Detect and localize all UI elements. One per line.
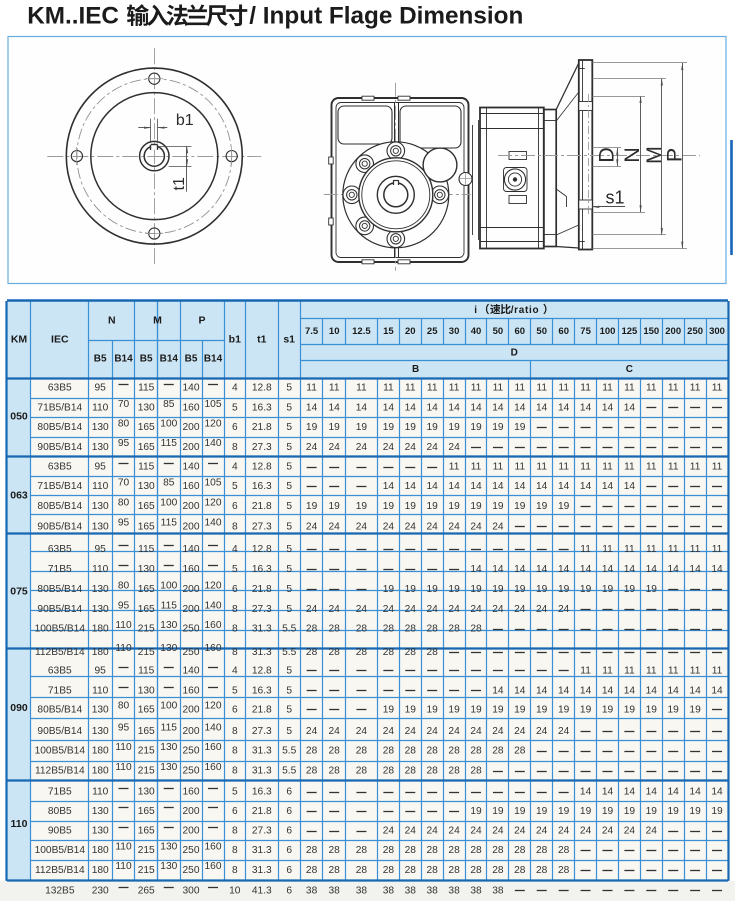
- svg-text:14: 14: [646, 787, 658, 798]
- svg-text:27.3: 27.3: [252, 826, 272, 837]
- svg-text:24: 24: [514, 826, 526, 837]
- svg-text:D: D: [511, 347, 518, 358]
- svg-text:115: 115: [161, 722, 178, 733]
- svg-text:11: 11: [580, 462, 591, 473]
- svg-text:11: 11: [712, 383, 723, 394]
- svg-text:71B5: 71B5: [48, 685, 72, 696]
- svg-text:19: 19: [383, 501, 395, 512]
- svg-text:95: 95: [95, 544, 107, 555]
- svg-text:11: 11: [690, 383, 701, 394]
- svg-text:300: 300: [709, 326, 725, 337]
- svg-text:19: 19: [470, 422, 482, 433]
- svg-text:i: i: [474, 305, 477, 316]
- svg-text:14: 14: [536, 402, 548, 413]
- svg-text:14: 14: [711, 787, 723, 798]
- svg-text:27.3: 27.3: [252, 604, 272, 615]
- svg-text:14: 14: [580, 787, 592, 798]
- svg-text:160: 160: [205, 762, 222, 773]
- svg-text:28: 28: [448, 766, 460, 777]
- svg-text:24: 24: [558, 726, 570, 737]
- svg-text:100: 100: [160, 701, 177, 712]
- svg-text:115: 115: [161, 518, 178, 529]
- svg-text:28: 28: [405, 766, 417, 777]
- svg-text:11: 11: [712, 544, 723, 555]
- svg-text:28: 28: [306, 845, 318, 856]
- svg-text:250: 250: [183, 624, 200, 635]
- svg-text:14: 14: [427, 481, 439, 492]
- svg-text:165: 165: [138, 806, 155, 817]
- svg-text:160: 160: [205, 620, 222, 631]
- svg-text:250: 250: [183, 746, 200, 757]
- svg-text:11: 11: [471, 462, 482, 473]
- svg-text:N: N: [108, 315, 116, 327]
- svg-text:11: 11: [536, 462, 547, 473]
- svg-text:19: 19: [624, 806, 636, 817]
- svg-text:120: 120: [205, 580, 222, 591]
- svg-text:10: 10: [329, 326, 340, 337]
- svg-text:215: 215: [138, 766, 155, 777]
- svg-text:28: 28: [427, 845, 439, 856]
- svg-text:24: 24: [405, 826, 417, 837]
- svg-text:63B5: 63B5: [48, 544, 72, 555]
- svg-text:14: 14: [514, 685, 526, 696]
- svg-text:19: 19: [558, 806, 570, 817]
- svg-text:14: 14: [492, 481, 504, 492]
- svg-text:5.5: 5.5: [282, 766, 296, 777]
- svg-text:160: 160: [205, 742, 222, 753]
- svg-text:24: 24: [329, 442, 341, 453]
- svg-text:19: 19: [329, 501, 341, 512]
- svg-text:s1: s1: [283, 334, 295, 346]
- svg-text:14: 14: [689, 685, 701, 696]
- svg-text:14: 14: [624, 402, 636, 413]
- svg-text:60: 60: [515, 326, 526, 337]
- svg-text:28: 28: [448, 865, 460, 876]
- svg-text:28: 28: [558, 845, 570, 856]
- svg-text:11: 11: [646, 462, 657, 473]
- svg-text:160: 160: [205, 643, 222, 654]
- svg-text:5: 5: [286, 544, 292, 555]
- svg-text:28: 28: [329, 865, 341, 876]
- svg-text:12.8: 12.8: [252, 666, 272, 677]
- svg-text:19: 19: [405, 704, 417, 715]
- svg-text:28: 28: [427, 865, 439, 876]
- svg-text:19: 19: [383, 584, 395, 595]
- svg-text:100B5/B14: 100B5/B14: [35, 746, 86, 757]
- svg-text:28: 28: [448, 845, 460, 856]
- svg-text:14: 14: [602, 685, 614, 696]
- svg-text:90B5/B14: 90B5/B14: [37, 442, 82, 453]
- svg-text:130: 130: [138, 787, 155, 798]
- svg-text:11: 11: [580, 666, 591, 677]
- svg-text:160: 160: [205, 842, 222, 853]
- svg-text:24: 24: [492, 826, 504, 837]
- svg-text:11: 11: [515, 383, 526, 394]
- svg-text:160: 160: [183, 564, 200, 575]
- svg-text:110: 110: [92, 481, 109, 492]
- svg-text:140: 140: [183, 666, 200, 677]
- svg-text:70: 70: [118, 399, 130, 410]
- svg-text:11: 11: [449, 462, 460, 473]
- svg-text:4: 4: [232, 666, 238, 677]
- svg-text:28: 28: [383, 746, 395, 757]
- svg-text:8: 8: [232, 604, 238, 615]
- svg-text:24: 24: [470, 826, 482, 837]
- svg-text:KM: KM: [11, 334, 28, 346]
- svg-text:5: 5: [286, 481, 292, 492]
- svg-text:95: 95: [95, 666, 107, 677]
- svg-text:180: 180: [92, 766, 109, 777]
- svg-text:14: 14: [448, 402, 460, 413]
- svg-text:140: 140: [183, 383, 200, 394]
- svg-text:19: 19: [470, 584, 482, 595]
- svg-text:5: 5: [232, 685, 238, 696]
- svg-text:150: 150: [643, 326, 659, 337]
- svg-text:63B5: 63B5: [48, 666, 72, 677]
- svg-text:11: 11: [668, 462, 679, 473]
- svg-text:28: 28: [306, 746, 318, 757]
- svg-text:165: 165: [138, 604, 155, 615]
- svg-text:28: 28: [356, 845, 368, 856]
- svg-text:21.8: 21.8: [252, 422, 272, 433]
- svg-text:215: 215: [138, 624, 155, 635]
- svg-text:80B5: 80B5: [48, 806, 72, 817]
- svg-text:265: 265: [138, 886, 155, 897]
- svg-text:11: 11: [580, 544, 591, 555]
- svg-text:90B5/B14: 90B5/B14: [37, 604, 82, 615]
- svg-text:160: 160: [183, 685, 200, 696]
- svg-text:28: 28: [383, 845, 395, 856]
- svg-text:160: 160: [205, 861, 222, 872]
- svg-text:11: 11: [356, 383, 367, 394]
- svg-text:21.8: 21.8: [252, 704, 272, 715]
- svg-text:24: 24: [427, 726, 439, 737]
- svg-text:130: 130: [160, 742, 177, 753]
- svg-text:11: 11: [405, 383, 416, 394]
- svg-text:40: 40: [471, 326, 482, 337]
- svg-text:5: 5: [286, 685, 292, 696]
- svg-text:165: 165: [138, 826, 155, 837]
- svg-text:105: 105: [205, 399, 222, 410]
- svg-text:B5: B5: [140, 354, 153, 365]
- svg-text:19: 19: [405, 422, 417, 433]
- svg-text:200: 200: [183, 604, 200, 615]
- svg-text:19: 19: [492, 422, 504, 433]
- svg-text:130: 130: [92, 806, 109, 817]
- svg-text:14: 14: [668, 787, 680, 798]
- svg-text:6: 6: [286, 806, 292, 817]
- svg-text:110: 110: [92, 787, 109, 798]
- svg-text:24: 24: [405, 521, 417, 532]
- svg-text:28: 28: [306, 865, 318, 876]
- svg-text:31.3: 31.3: [252, 647, 272, 658]
- svg-text:24: 24: [624, 826, 636, 837]
- svg-text:24: 24: [427, 826, 439, 837]
- svg-text:80B5/B14: 80B5/B14: [37, 501, 82, 512]
- svg-text:11: 11: [624, 462, 635, 473]
- svg-text:14: 14: [580, 481, 592, 492]
- svg-text:140: 140: [183, 462, 200, 473]
- svg-text:10: 10: [229, 886, 241, 897]
- svg-text:19: 19: [514, 704, 526, 715]
- svg-text:180: 180: [92, 845, 109, 856]
- svg-text:19: 19: [405, 584, 417, 595]
- svg-text:140: 140: [205, 438, 222, 449]
- svg-text:16.3: 16.3: [252, 481, 272, 492]
- svg-text:14: 14: [306, 402, 318, 413]
- svg-text:16.3: 16.3: [252, 564, 272, 575]
- svg-text:19: 19: [602, 704, 614, 715]
- svg-text:38: 38: [405, 886, 417, 897]
- svg-text:130: 130: [160, 620, 177, 631]
- svg-text:100B5/B14: 100B5/B14: [35, 845, 86, 856]
- svg-text:B5: B5: [94, 354, 107, 365]
- svg-text:24: 24: [427, 521, 439, 532]
- svg-text:12.8: 12.8: [252, 462, 272, 473]
- svg-text:19: 19: [427, 501, 439, 512]
- svg-text:110: 110: [11, 818, 28, 830]
- svg-text:14: 14: [711, 685, 723, 696]
- svg-text:11: 11: [668, 383, 679, 394]
- svg-text:11: 11: [515, 462, 526, 473]
- svg-text:130: 130: [138, 402, 155, 413]
- svg-text:063: 063: [10, 489, 28, 501]
- svg-text:t1: t1: [171, 177, 188, 190]
- svg-text:14: 14: [329, 402, 341, 413]
- svg-text:19: 19: [536, 584, 548, 595]
- svg-text:16.3: 16.3: [252, 787, 272, 798]
- svg-text:38: 38: [492, 886, 504, 897]
- svg-text:250: 250: [183, 865, 200, 876]
- svg-text:19: 19: [558, 584, 570, 595]
- svg-text:28: 28: [383, 624, 395, 635]
- svg-text:160: 160: [183, 402, 200, 413]
- svg-text:24: 24: [356, 521, 368, 532]
- svg-text:19: 19: [492, 704, 504, 715]
- svg-text:14: 14: [624, 481, 636, 492]
- svg-text:165: 165: [138, 521, 155, 532]
- svg-text:28: 28: [329, 746, 341, 757]
- svg-text:B14: B14: [160, 354, 179, 365]
- svg-text:28: 28: [329, 766, 341, 777]
- svg-text:165: 165: [138, 726, 155, 737]
- svg-text:16.3: 16.3: [252, 685, 272, 696]
- svg-text:140: 140: [183, 544, 200, 555]
- svg-text:19: 19: [427, 422, 439, 433]
- svg-text:165: 165: [138, 442, 155, 453]
- svg-text:24: 24: [329, 521, 341, 532]
- svg-text:80B5/B14: 80B5/B14: [37, 704, 82, 715]
- svg-text:215: 215: [138, 865, 155, 876]
- svg-text:100: 100: [160, 497, 177, 508]
- svg-text:24: 24: [448, 726, 460, 737]
- svg-text:38: 38: [427, 886, 439, 897]
- svg-text:8: 8: [232, 647, 238, 658]
- svg-text:24: 24: [492, 521, 504, 532]
- svg-text:6: 6: [286, 865, 292, 876]
- svg-text:130: 130: [92, 826, 109, 837]
- svg-text:b1: b1: [229, 334, 241, 346]
- svg-text:19: 19: [668, 704, 680, 715]
- svg-text:5: 5: [232, 787, 238, 798]
- svg-text:110: 110: [115, 861, 132, 872]
- svg-text:140: 140: [205, 518, 222, 529]
- svg-text:16.3: 16.3: [252, 402, 272, 413]
- svg-text:19: 19: [405, 501, 417, 512]
- svg-text:28: 28: [383, 647, 395, 658]
- svg-text:b1: b1: [176, 112, 194, 129]
- svg-text:8: 8: [232, 865, 238, 876]
- svg-text:19: 19: [329, 422, 341, 433]
- svg-text:11: 11: [646, 383, 657, 394]
- svg-text:/ Input Flage Dimension: / Input Flage Dimension: [249, 2, 523, 29]
- svg-text:28: 28: [306, 647, 318, 658]
- svg-text:130: 130: [92, 726, 109, 737]
- svg-text:19: 19: [711, 806, 723, 817]
- svg-text:28: 28: [427, 624, 439, 635]
- svg-text:38: 38: [356, 886, 368, 897]
- svg-text:11: 11: [668, 544, 679, 555]
- svg-text:250: 250: [183, 845, 200, 856]
- svg-text:95: 95: [95, 462, 107, 473]
- svg-text:8: 8: [232, 746, 238, 757]
- svg-text:5: 5: [286, 501, 292, 512]
- svg-text:24: 24: [383, 442, 395, 453]
- svg-text:110: 110: [115, 742, 132, 753]
- svg-text:19: 19: [448, 584, 460, 595]
- svg-text:15: 15: [383, 326, 394, 337]
- svg-text:24: 24: [356, 726, 368, 737]
- svg-text:125: 125: [621, 326, 638, 337]
- svg-text:11: 11: [580, 383, 591, 394]
- svg-text:21.8: 21.8: [252, 501, 272, 512]
- svg-text:KM..IEC: KM..IEC: [27, 2, 119, 29]
- svg-text:14: 14: [580, 564, 592, 575]
- svg-text:110: 110: [92, 564, 109, 575]
- svg-text:200: 200: [183, 806, 200, 817]
- svg-text:11: 11: [536, 383, 547, 394]
- svg-text:165: 165: [138, 704, 155, 715]
- svg-text:24: 24: [427, 442, 439, 453]
- svg-text:5: 5: [286, 383, 292, 394]
- svg-text:28: 28: [558, 865, 570, 876]
- svg-text:11: 11: [646, 666, 657, 677]
- svg-text:14: 14: [689, 564, 701, 575]
- svg-text:11: 11: [383, 383, 394, 394]
- svg-text:215: 215: [138, 647, 155, 658]
- svg-text:14: 14: [580, 685, 592, 696]
- svg-text:19: 19: [624, 704, 636, 715]
- svg-text:5: 5: [286, 462, 292, 473]
- svg-text:5: 5: [232, 481, 238, 492]
- svg-text:5.5: 5.5: [282, 746, 296, 757]
- svg-text:14: 14: [624, 564, 636, 575]
- svg-text:7.5: 7.5: [305, 326, 319, 337]
- svg-text:19: 19: [668, 806, 680, 817]
- svg-text:250: 250: [687, 326, 703, 337]
- svg-text:D: D: [594, 147, 618, 163]
- svg-text:24: 24: [448, 604, 460, 615]
- svg-text:11: 11: [602, 544, 613, 555]
- svg-text:28: 28: [514, 845, 526, 856]
- svg-text:24: 24: [306, 604, 318, 615]
- svg-text:27.3: 27.3: [252, 521, 272, 532]
- svg-text:100: 100: [160, 419, 177, 430]
- svg-text:80: 80: [118, 497, 130, 508]
- svg-text:115: 115: [161, 438, 178, 449]
- svg-text:19: 19: [646, 584, 658, 595]
- svg-text:63B5: 63B5: [48, 383, 72, 394]
- svg-text:130: 130: [92, 704, 109, 715]
- svg-text:19: 19: [646, 704, 658, 715]
- svg-text:19: 19: [470, 501, 482, 512]
- svg-text:28: 28: [405, 647, 417, 658]
- svg-text:24: 24: [536, 604, 548, 615]
- svg-text:28: 28: [306, 624, 318, 635]
- svg-text:14: 14: [558, 564, 570, 575]
- svg-text:27.3: 27.3: [252, 726, 272, 737]
- svg-text:200: 200: [183, 442, 200, 453]
- svg-text:19: 19: [383, 704, 395, 715]
- svg-text:165: 165: [138, 422, 155, 433]
- svg-text:19: 19: [580, 704, 592, 715]
- svg-text:6: 6: [286, 845, 292, 856]
- svg-text:11: 11: [471, 383, 482, 394]
- svg-text:14: 14: [558, 402, 570, 413]
- svg-text:C: C: [626, 364, 633, 375]
- svg-text:24: 24: [492, 604, 504, 615]
- svg-text:30: 30: [449, 326, 460, 337]
- svg-text:19: 19: [448, 501, 460, 512]
- svg-text:28: 28: [514, 746, 526, 757]
- svg-text:5: 5: [286, 402, 292, 413]
- svg-text:24: 24: [514, 604, 526, 615]
- svg-text:IEC: IEC: [51, 334, 69, 346]
- svg-text:28: 28: [470, 766, 482, 777]
- svg-text:19: 19: [383, 422, 395, 433]
- svg-text:95: 95: [118, 722, 130, 733]
- svg-text:160: 160: [183, 481, 200, 492]
- svg-text:5: 5: [286, 584, 292, 595]
- svg-text:14: 14: [514, 402, 526, 413]
- svg-text:19: 19: [536, 806, 548, 817]
- svg-text:24: 24: [356, 442, 368, 453]
- svg-text:11: 11: [602, 666, 613, 677]
- svg-text:050: 050: [10, 411, 28, 423]
- svg-text:120: 120: [205, 497, 222, 508]
- svg-text:P: P: [663, 148, 687, 162]
- svg-text:P: P: [198, 315, 205, 327]
- svg-text:M: M: [153, 315, 162, 327]
- svg-text:28: 28: [470, 624, 482, 635]
- svg-text:5: 5: [286, 521, 292, 532]
- svg-text:28: 28: [448, 624, 460, 635]
- svg-text:110: 110: [115, 620, 132, 631]
- svg-text:110: 110: [115, 762, 132, 773]
- svg-text:12.8: 12.8: [252, 383, 272, 394]
- svg-text:6: 6: [232, 501, 238, 512]
- svg-text:14: 14: [602, 787, 614, 798]
- svg-text:28: 28: [470, 845, 482, 856]
- svg-text:215: 215: [138, 845, 155, 856]
- svg-text:24: 24: [405, 604, 417, 615]
- svg-text:130: 130: [138, 564, 155, 575]
- svg-text:12.5: 12.5: [352, 326, 371, 337]
- svg-text:6: 6: [286, 787, 292, 798]
- svg-text:6: 6: [232, 584, 238, 595]
- svg-text:B14: B14: [114, 354, 133, 365]
- svg-text:5.5: 5.5: [282, 624, 296, 635]
